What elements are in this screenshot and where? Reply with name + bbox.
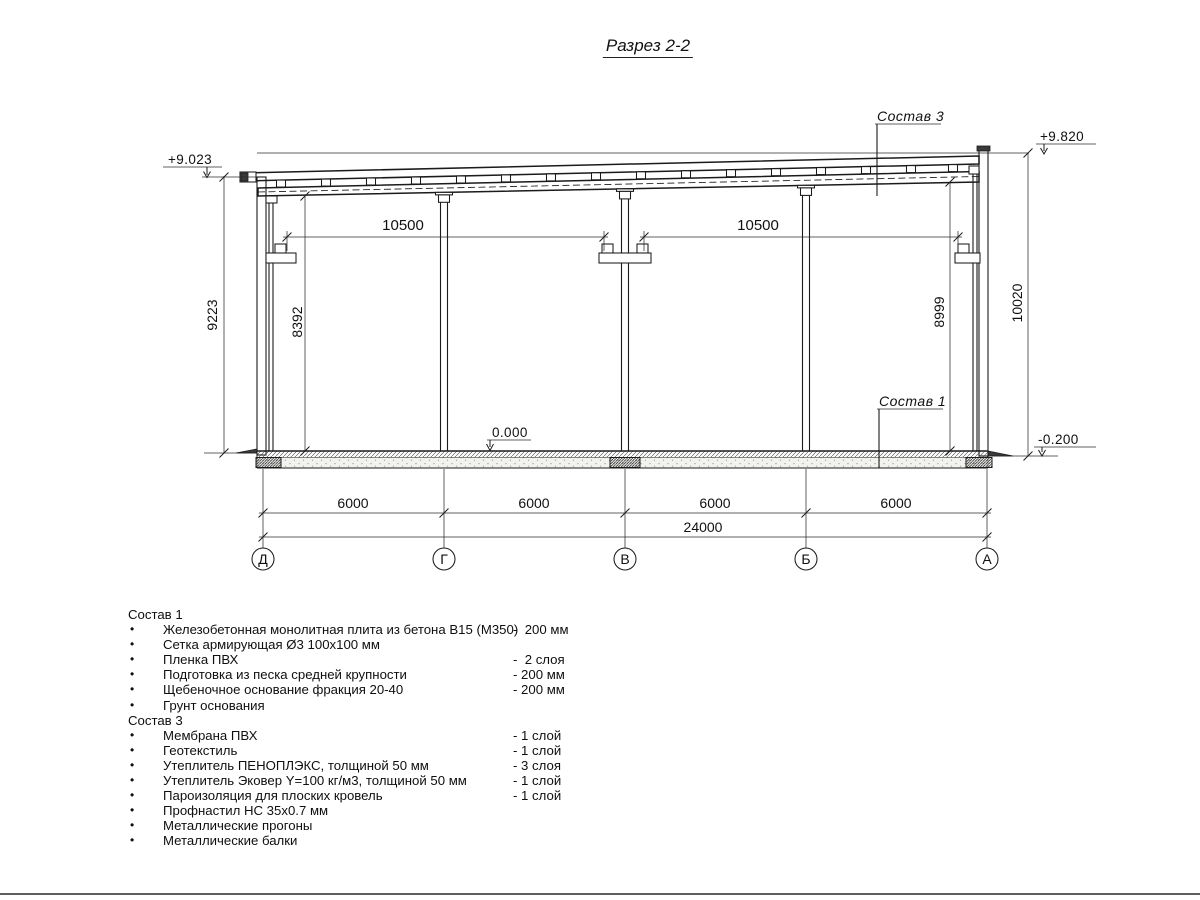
right-inner-column-head (969, 166, 979, 174)
bottom-divider (0, 893, 1200, 895)
list-item: •Утеплитель Эковер Y=100 кг/м3, толщиной… (128, 773, 618, 788)
section-drawing: 10500 10500 9223 8392 8999 10020 +9.023 … (0, 0, 1200, 600)
svg-text:Состав 1: Состав 1 (879, 393, 946, 409)
left-wall (257, 177, 266, 455)
dim-span-left: 10500 (382, 217, 424, 234)
grade-wedge-left (236, 449, 257, 453)
svg-text:0.000: 0.000 (492, 425, 528, 440)
brackets (266, 244, 980, 263)
bullet-icon: • (130, 637, 134, 652)
roof-assembly (240, 156, 979, 196)
column-b (798, 185, 815, 451)
list-item: •Пленка ПВХ- 2 слоя (128, 652, 618, 667)
svg-text:+9.023: +9.023 (168, 152, 212, 167)
dim-bay-2: 6000 (518, 495, 549, 511)
bullet-icon: • (130, 652, 134, 667)
axis-label-g: Г (440, 551, 448, 567)
list-item: •Подготовка из песка средней крупности- … (128, 667, 618, 682)
list-item: •Металлические балки (128, 833, 618, 848)
list-item: •Мембрана ПВХ- 1 слой (128, 728, 618, 743)
dim-v-right-outer: 10020 (1009, 283, 1025, 322)
dim-bay-3: 6000 (699, 495, 730, 511)
list-item: •Грунт основания (128, 698, 618, 713)
dim-total: 24000 (684, 519, 723, 535)
column-v (617, 189, 634, 451)
list-item: •Геотекстиль- 1 слой (128, 743, 618, 758)
sostav1-header: Состав 1 (128, 607, 618, 622)
elevation-ground: -0.200 (1034, 432, 1096, 456)
list-item: •Сетка армирующая Ø3 100х100 мм (128, 637, 618, 652)
list-item: •Профнастил НС 35х0.7 мм (128, 803, 618, 818)
footing-v (610, 458, 640, 468)
bullet-icon: • (130, 803, 134, 818)
footing-a (966, 458, 992, 468)
svg-text:Состав 3: Состав 3 (877, 108, 944, 124)
list-item: •Пароизоляция для плоских кровель- 1 сло… (128, 788, 618, 803)
bullet-icon: • (130, 773, 134, 788)
right-parapet-cap (977, 146, 990, 151)
elevation-floor: 0.000 (487, 425, 532, 451)
dim-v-left-outer: 9223 (204, 299, 220, 330)
elevation-left-top: +9.023 (163, 152, 222, 178)
svg-text:-0.200: -0.200 (1038, 432, 1079, 447)
bullet-icon: • (130, 743, 134, 758)
bullet-icon: • (130, 788, 134, 803)
dim-v-right-inner: 8999 (931, 296, 947, 327)
column-g (436, 192, 453, 451)
right-wall (979, 150, 988, 456)
bullet-icon: • (130, 622, 134, 637)
list-item: •Железобетонная монолитная плита из бето… (128, 622, 618, 637)
list-item: •Щебеночное основание фракция 20-40- 200… (128, 682, 618, 697)
sostav3-header: Состав 3 (128, 713, 618, 728)
bullet-icon: • (130, 818, 134, 833)
dim-v-left-inner: 8392 (289, 306, 305, 337)
elevation-right-top: +9.820 (1036, 129, 1096, 154)
bullet-icon: • (130, 758, 134, 773)
axis-grid: 6000 6000 6000 6000 24000 Д Г В Б А (252, 469, 998, 570)
bullet-icon: • (130, 833, 134, 848)
dim-span-right: 10500 (737, 217, 779, 234)
axis-label-b: Б (801, 551, 810, 567)
bullet-icon: • (130, 728, 134, 743)
axis-label-d: Д (258, 551, 268, 567)
composition-notes: Состав 1 •Железобетонная монолитная плит… (128, 607, 618, 849)
list-item: •Металлические прогоны (128, 818, 618, 833)
axis-label-a: А (982, 551, 992, 567)
leader-labels: Состав 3 Состав 1 (875, 108, 946, 468)
bullet-icon: • (130, 698, 134, 713)
concrete-slab (257, 451, 988, 458)
elevation-marks: +9.023 +9.820 0.000 -0.200 (163, 129, 1096, 456)
floor-slab (204, 449, 1058, 468)
list-item: •Утеплитель ПЕНОПЛЭКС, толщиной 50 мм- 3… (128, 758, 618, 773)
bullet-icon: • (130, 682, 134, 697)
svg-text:+9.820: +9.820 (1040, 129, 1084, 144)
dim-bay-1: 6000 (337, 495, 368, 511)
left-inner-column-head (266, 196, 277, 203)
footing-d (256, 458, 281, 468)
span-dimensions: 10500 10500 (283, 217, 963, 251)
dim-bay-4: 6000 (880, 495, 911, 511)
axis-label-v: В (620, 551, 629, 567)
bullet-icon: • (130, 667, 134, 682)
grade-wedge-right (988, 451, 1013, 456)
